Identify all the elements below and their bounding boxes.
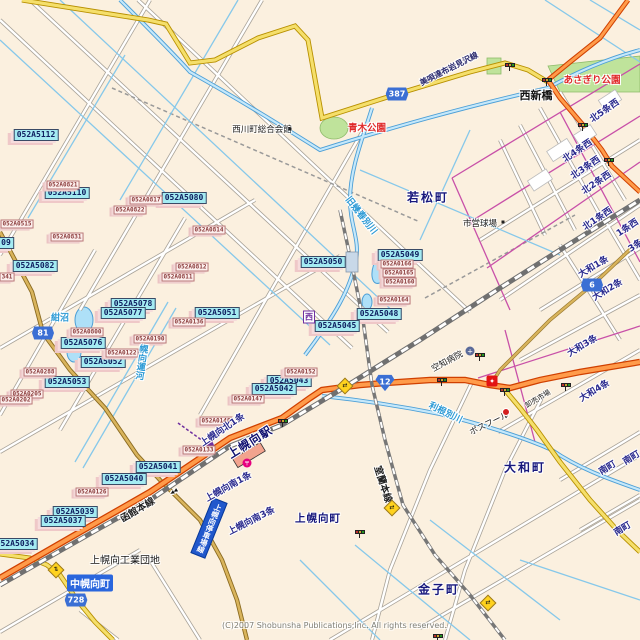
- map-point-label[interactable]: 052A5080: [162, 192, 207, 204]
- map-ref-label[interactable]: 052A0166: [381, 260, 414, 269]
- map-label: 西: [303, 311, 315, 324]
- map-canvas[interactable]: 上幌向停車場線 (C)2007 Shobunsha Publications,I…: [0, 0, 640, 640]
- map-ref-label[interactable]: 052A0811: [162, 273, 195, 282]
- map-ref-label[interactable]: 052A0190: [134, 335, 167, 344]
- map-point-label[interactable]: 052A5053: [45, 376, 90, 388]
- traffic-signal-icon: [505, 63, 515, 67]
- post-office-icon: 〒: [243, 459, 252, 468]
- map-ref-label[interactable]: 052A0831: [51, 233, 84, 242]
- copyright-notice: (C)2007 Shobunsha Publications,Inc. All …: [222, 621, 447, 630]
- map-point-label[interactable]: 052A5050: [301, 256, 346, 268]
- map-label: 若松町: [407, 189, 449, 206]
- traffic-signal-icon: [604, 158, 614, 162]
- store-dot-icon: [502, 408, 510, 416]
- y-light: [504, 389, 506, 391]
- g-light: [549, 79, 551, 81]
- traffic-signal-icon: [278, 419, 288, 423]
- map-point-label[interactable]: 052A5042: [252, 383, 297, 395]
- map-label: 西川町総合会館: [232, 123, 292, 135]
- map-point-label[interactable]: 052A5037: [41, 515, 86, 527]
- y-light: [582, 124, 584, 126]
- map-label: 紺沼: [51, 311, 69, 324]
- g-light: [440, 635, 442, 637]
- map-label: 市営球場: [463, 217, 497, 229]
- map-ref-label[interactable]: 052A0822: [114, 206, 147, 215]
- map-ref-label[interactable]: 052A0515: [1, 220, 34, 229]
- map-ref-label[interactable]: 052A0800: [71, 328, 104, 337]
- map-ref-label[interactable]: 052A0122: [106, 349, 139, 358]
- map-ref-label[interactable]: 052A0160: [384, 278, 417, 287]
- y-light: [282, 420, 284, 422]
- map-point-label[interactable]: 052A5076: [61, 337, 106, 349]
- arrow-glyph: ⇄: [342, 383, 347, 389]
- y-light: [565, 384, 567, 386]
- route-shield: 728: [65, 594, 88, 607]
- map-ref-label[interactable]: 052A0814: [193, 226, 226, 235]
- y-light: [359, 531, 361, 533]
- hospital-icon: +: [466, 347, 475, 356]
- r-light: [438, 379, 440, 381]
- prefectural-road-6: [493, 240, 640, 381]
- r-light: [501, 389, 503, 391]
- map-label: あさぎり公園: [563, 72, 620, 86]
- map-point-label[interactable]: 052A5077: [101, 307, 146, 319]
- y-light: [441, 379, 443, 381]
- map-point-label[interactable]: 052A5048: [357, 308, 402, 320]
- arrow-glyph: ⇄: [485, 600, 490, 606]
- shopping-center-icon: ✦: [487, 376, 498, 387]
- y-light: [608, 159, 610, 161]
- map-ref-label[interactable]: 052A0202: [0, 396, 32, 405]
- r-light: [579, 124, 581, 126]
- map-point-label[interactable]: 09: [0, 237, 14, 249]
- map-ref-label[interactable]: 052A0147: [232, 395, 265, 404]
- map-ref-label[interactable]: 052A0133: [183, 446, 216, 455]
- g-light: [512, 64, 514, 66]
- y-light: [509, 64, 511, 66]
- map-point-label[interactable]: 052A5082: [13, 260, 58, 272]
- map-ref-label[interactable]: 341: [0, 273, 14, 282]
- map-point-label[interactable]: 052A5041: [136, 461, 181, 473]
- y-light: [479, 354, 481, 356]
- g-light: [285, 420, 287, 422]
- map-label: 上幌向町: [295, 511, 341, 526]
- traffic-signal-icon: [437, 378, 447, 382]
- poi-dot-icon: [502, 221, 505, 224]
- r-light: [356, 531, 358, 533]
- map-ref-label[interactable]: 052A0136: [173, 318, 206, 327]
- traffic-signal-icon: [433, 634, 443, 638]
- traffic-signal-icon: [500, 388, 510, 392]
- r-light: [279, 420, 281, 422]
- g-light: [482, 354, 484, 356]
- g-light: [585, 124, 587, 126]
- map-label: 西新橋: [520, 87, 553, 103]
- g-light: [362, 531, 364, 533]
- r-light: [605, 159, 607, 161]
- map-ref-label[interactable]: 052A0821: [47, 181, 80, 190]
- traffic-signal-icon: [578, 123, 588, 127]
- traffic-signal-icon: [542, 78, 552, 82]
- r-light: [543, 79, 545, 81]
- map-point-label[interactable]: 052A5112: [14, 129, 59, 141]
- map-ref-label[interactable]: 052A0817: [130, 196, 163, 205]
- map-point-label[interactable]: 052A5040: [102, 473, 147, 485]
- map-label: 中幌向町: [67, 575, 113, 592]
- map-point-label[interactable]: 052A5045: [315, 320, 360, 332]
- map-ref-label[interactable]: 052A0126: [76, 488, 109, 497]
- map-label: 金子町: [418, 581, 460, 598]
- map-label: 青木公園: [348, 120, 386, 134]
- traffic-signal-icon: [355, 530, 365, 534]
- arrow-glyph: ⇅: [53, 567, 58, 573]
- route-shield: 6: [581, 279, 603, 292]
- traffic-signal-icon: [561, 383, 571, 387]
- map-point-label[interactable]: 052A5052: [81, 356, 126, 368]
- r-light: [506, 64, 508, 66]
- arrow-glyph: ⇄: [389, 505, 394, 511]
- y-light: [437, 635, 439, 637]
- map-ref-label[interactable]: 052A0164: [378, 296, 411, 305]
- y-light: [546, 79, 548, 81]
- map-ref-label[interactable]: 052A0165: [383, 269, 416, 278]
- route-shield: 387: [386, 88, 409, 101]
- g-light: [568, 384, 570, 386]
- map-ref-label[interactable]: 052A0812: [176, 263, 209, 272]
- r-light: [476, 354, 478, 356]
- g-light: [611, 159, 613, 161]
- map-ref-label[interactable]: 052A0288: [24, 368, 57, 377]
- map-ref-label[interactable]: 052A0152: [285, 368, 318, 377]
- r-light: [562, 384, 564, 386]
- traffic-signal-icon: [475, 353, 485, 357]
- route-shield: 81: [32, 327, 54, 340]
- g-light: [507, 389, 509, 391]
- g-light: [444, 379, 446, 381]
- map-label: 上幌向工業団地: [90, 552, 160, 567]
- map-point-label[interactable]: 052A5034: [0, 538, 37, 550]
- r-light: [434, 635, 436, 637]
- building-dot-icon: [289, 128, 292, 131]
- map-label: 大和町: [504, 459, 546, 476]
